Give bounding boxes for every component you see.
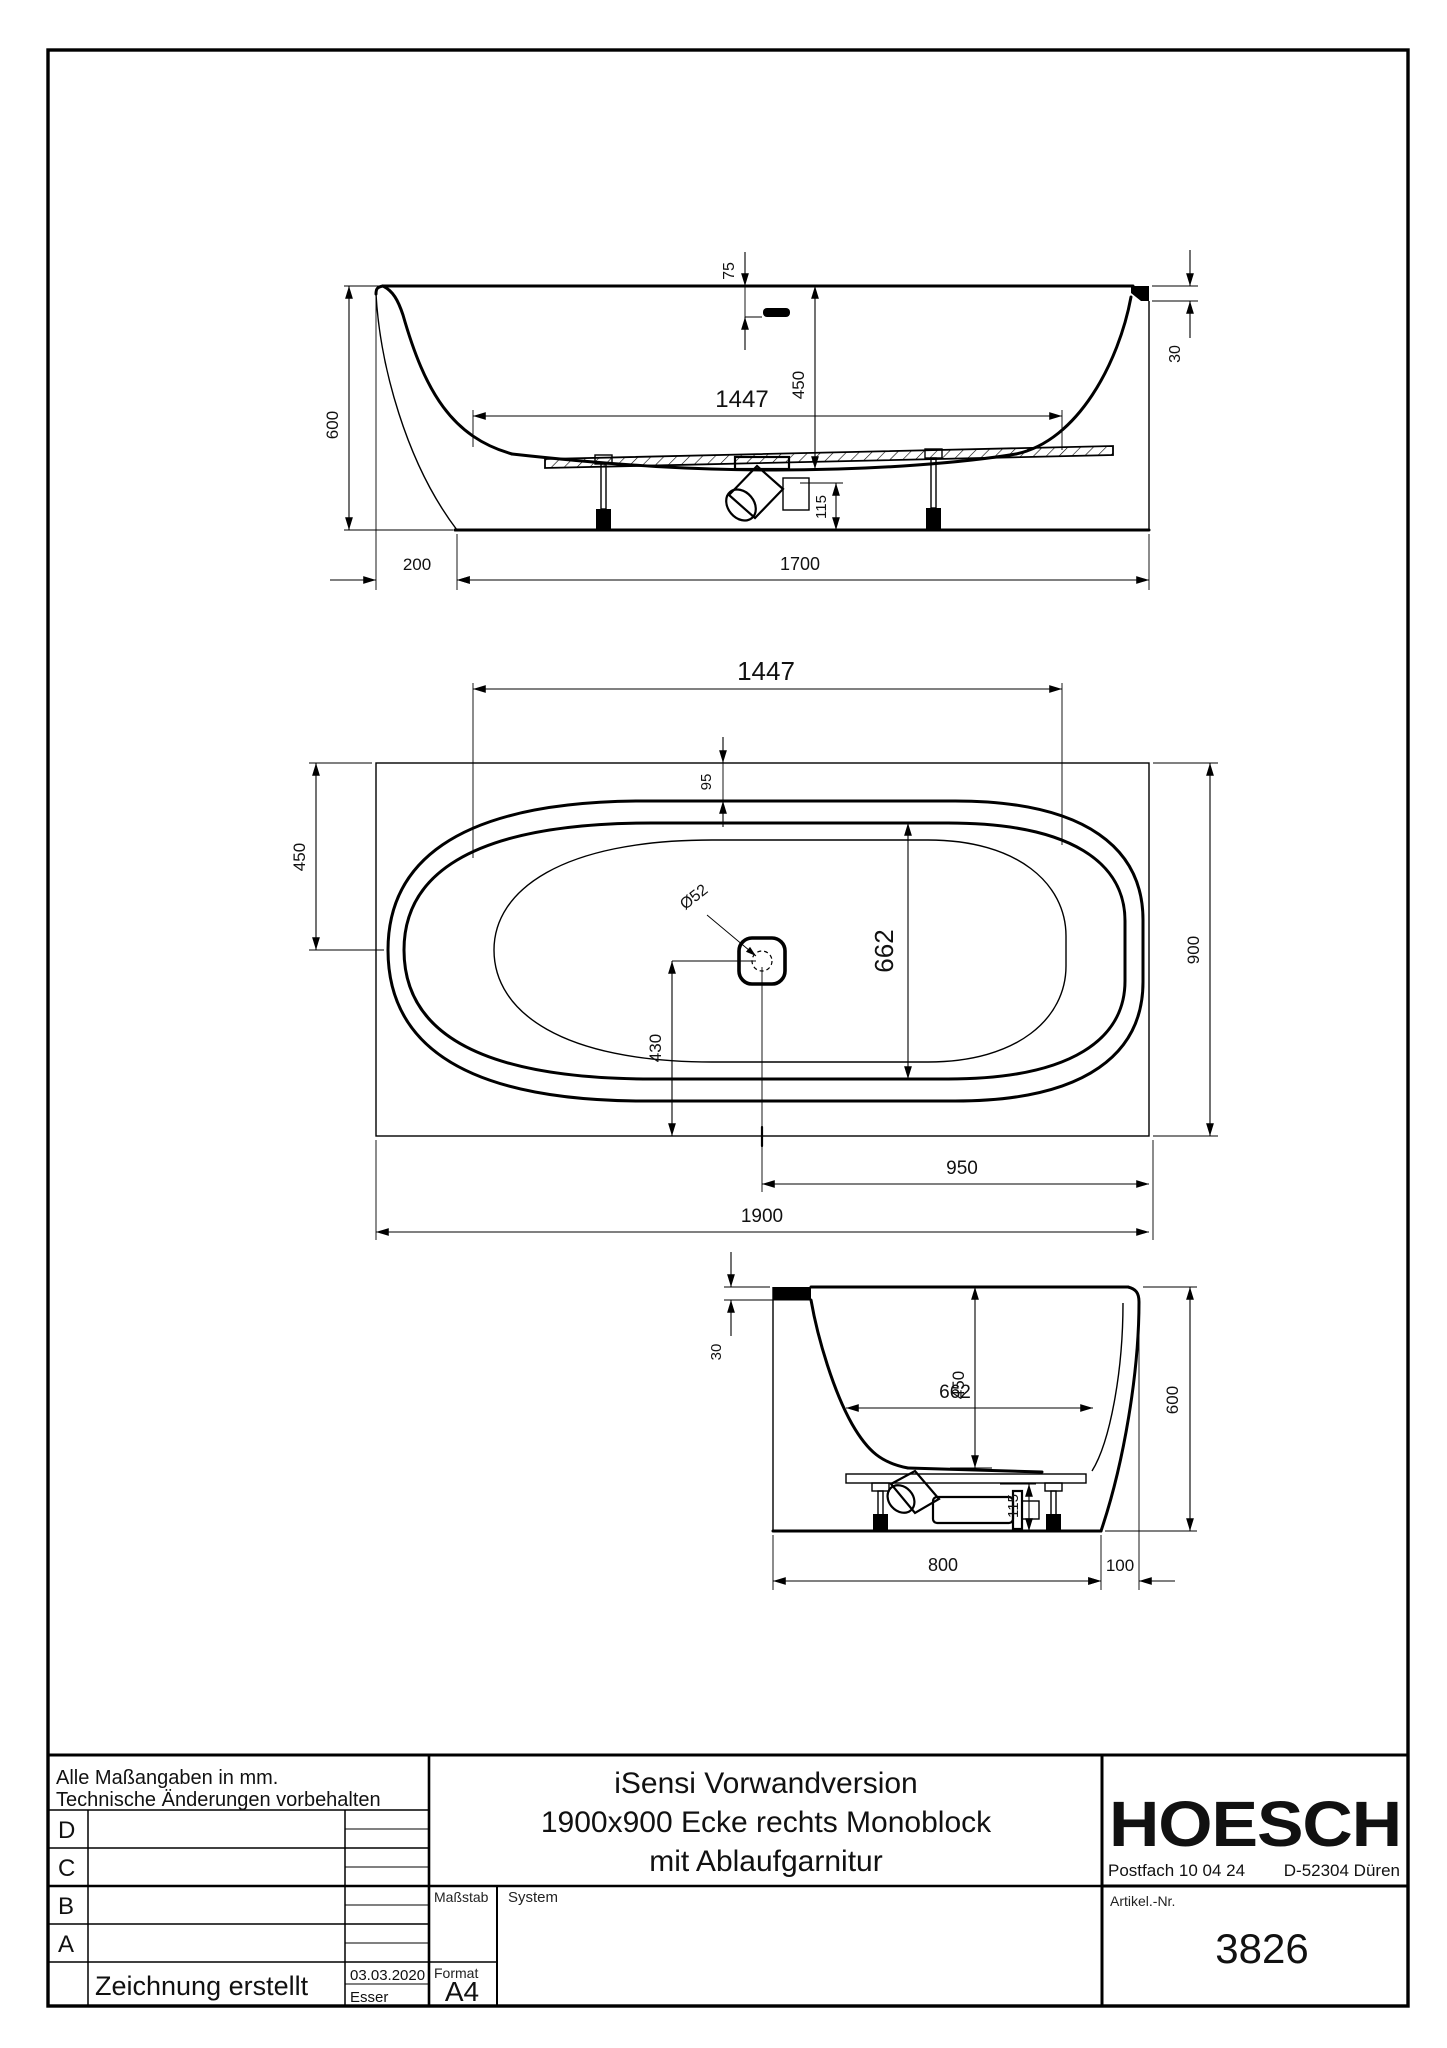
- foot-end-right: [1045, 1483, 1062, 1531]
- dim-side-rim: 30: [1167, 345, 1184, 363]
- drawing-title-line1: iSensi Vorwandversion: [614, 1767, 918, 1800]
- dim-plan-rim-width: 95: [698, 774, 715, 791]
- dim-plan-inner-length: 1447: [737, 656, 795, 686]
- dim-side-overflow: 75: [721, 262, 738, 280]
- technical-drawing: 600 200 1700 1447 450 75 30 115: [0, 0, 1447, 2048]
- created-by: Esser: [350, 1989, 388, 2006]
- dim-end-offset: 100: [1106, 1556, 1134, 1575]
- side-elevation-view: 600 200 1700 1447 450 75 30 115: [323, 250, 1198, 590]
- title-block: Alle Maßangaben in mm. Technische Änderu…: [48, 1755, 1408, 2007]
- dim-plan-drain-diameter: Ø52: [677, 881, 711, 913]
- created-date: 03.03.2020: [350, 1967, 425, 1984]
- rim-return: [773, 1287, 811, 1300]
- dim-plan-center-offset: 450: [290, 843, 309, 871]
- dim-side-height: 600: [323, 411, 342, 439]
- revision-row-d: D: [58, 1817, 75, 1844]
- drain-assembly-side: [720, 457, 809, 526]
- support-board-side: [545, 446, 1113, 468]
- dim-end-rim: 30: [708, 1344, 725, 1361]
- dim-plan-total-width: 900: [1184, 936, 1203, 964]
- plan-view: 1447 95 450 662 Ø52 430 950 1900 900: [290, 656, 1218, 1240]
- article-number: 3826: [1215, 1925, 1308, 1972]
- article-label: Artikel.-Nr.: [1110, 1893, 1175, 1909]
- dim-plan-opening-width: 662: [869, 929, 899, 972]
- brand-address: Postfach 10 04 24: [1108, 1861, 1245, 1880]
- basin-bottom-outline: [494, 840, 1066, 1062]
- drawing-title-line2: 1900x900 Ecke rechts Monoblock: [541, 1806, 992, 1839]
- note-changes: Technische Änderungen vorbehalten: [56, 1789, 381, 1811]
- foot-end-left: [872, 1483, 889, 1531]
- system-label: System: [508, 1889, 558, 1906]
- overflow-slot: [763, 308, 790, 317]
- format-value: A4: [445, 1976, 479, 2007]
- drawing-sheet: 600 200 1700 1447 450 75 30 115: [0, 0, 1447, 2048]
- note-units: Alle Maßangaben in mm.: [56, 1767, 278, 1789]
- revision-row-c: C: [58, 1855, 75, 1882]
- adjustable-foot-right: [925, 449, 942, 530]
- dim-side-drain-height: 115: [813, 495, 830, 519]
- end-elevation-view: 30 450 662 115 800 100 600: [708, 1252, 1197, 1590]
- dim-side-length: 1700: [780, 554, 820, 574]
- dim-end-inner-width: 800: [928, 1555, 958, 1575]
- drawing-title-line3: mit Ablaufgarnitur: [649, 1845, 882, 1878]
- dim-side-offset: 200: [403, 555, 431, 574]
- scale-label: Maßstab: [434, 1889, 489, 1905]
- dim-end-height: 600: [1163, 1386, 1182, 1414]
- support-board-end: [846, 1474, 1086, 1483]
- revision-row-a: A: [58, 1931, 74, 1958]
- created-label: Zeichnung erstellt: [95, 1971, 309, 2001]
- dim-side-inner-length: 1447: [715, 386, 768, 413]
- dim-side-depth: 450: [789, 371, 808, 399]
- dim-end-opening-width: 662: [939, 1382, 971, 1403]
- dim-plan-total-length: 1900: [741, 1206, 783, 1227]
- dim-end-drain-height: 115: [1005, 1494, 1022, 1518]
- brand-city: D-52304 Düren: [1284, 1861, 1400, 1880]
- revision-row-b: B: [58, 1893, 74, 1920]
- sheet-border: [48, 50, 1408, 2006]
- dim-plan-drain-from-edge: 430: [646, 1034, 665, 1062]
- dim-plan-drain-from-right: 950: [946, 1158, 978, 1179]
- hoesch-logo: HOESCH: [1109, 1788, 1401, 1860]
